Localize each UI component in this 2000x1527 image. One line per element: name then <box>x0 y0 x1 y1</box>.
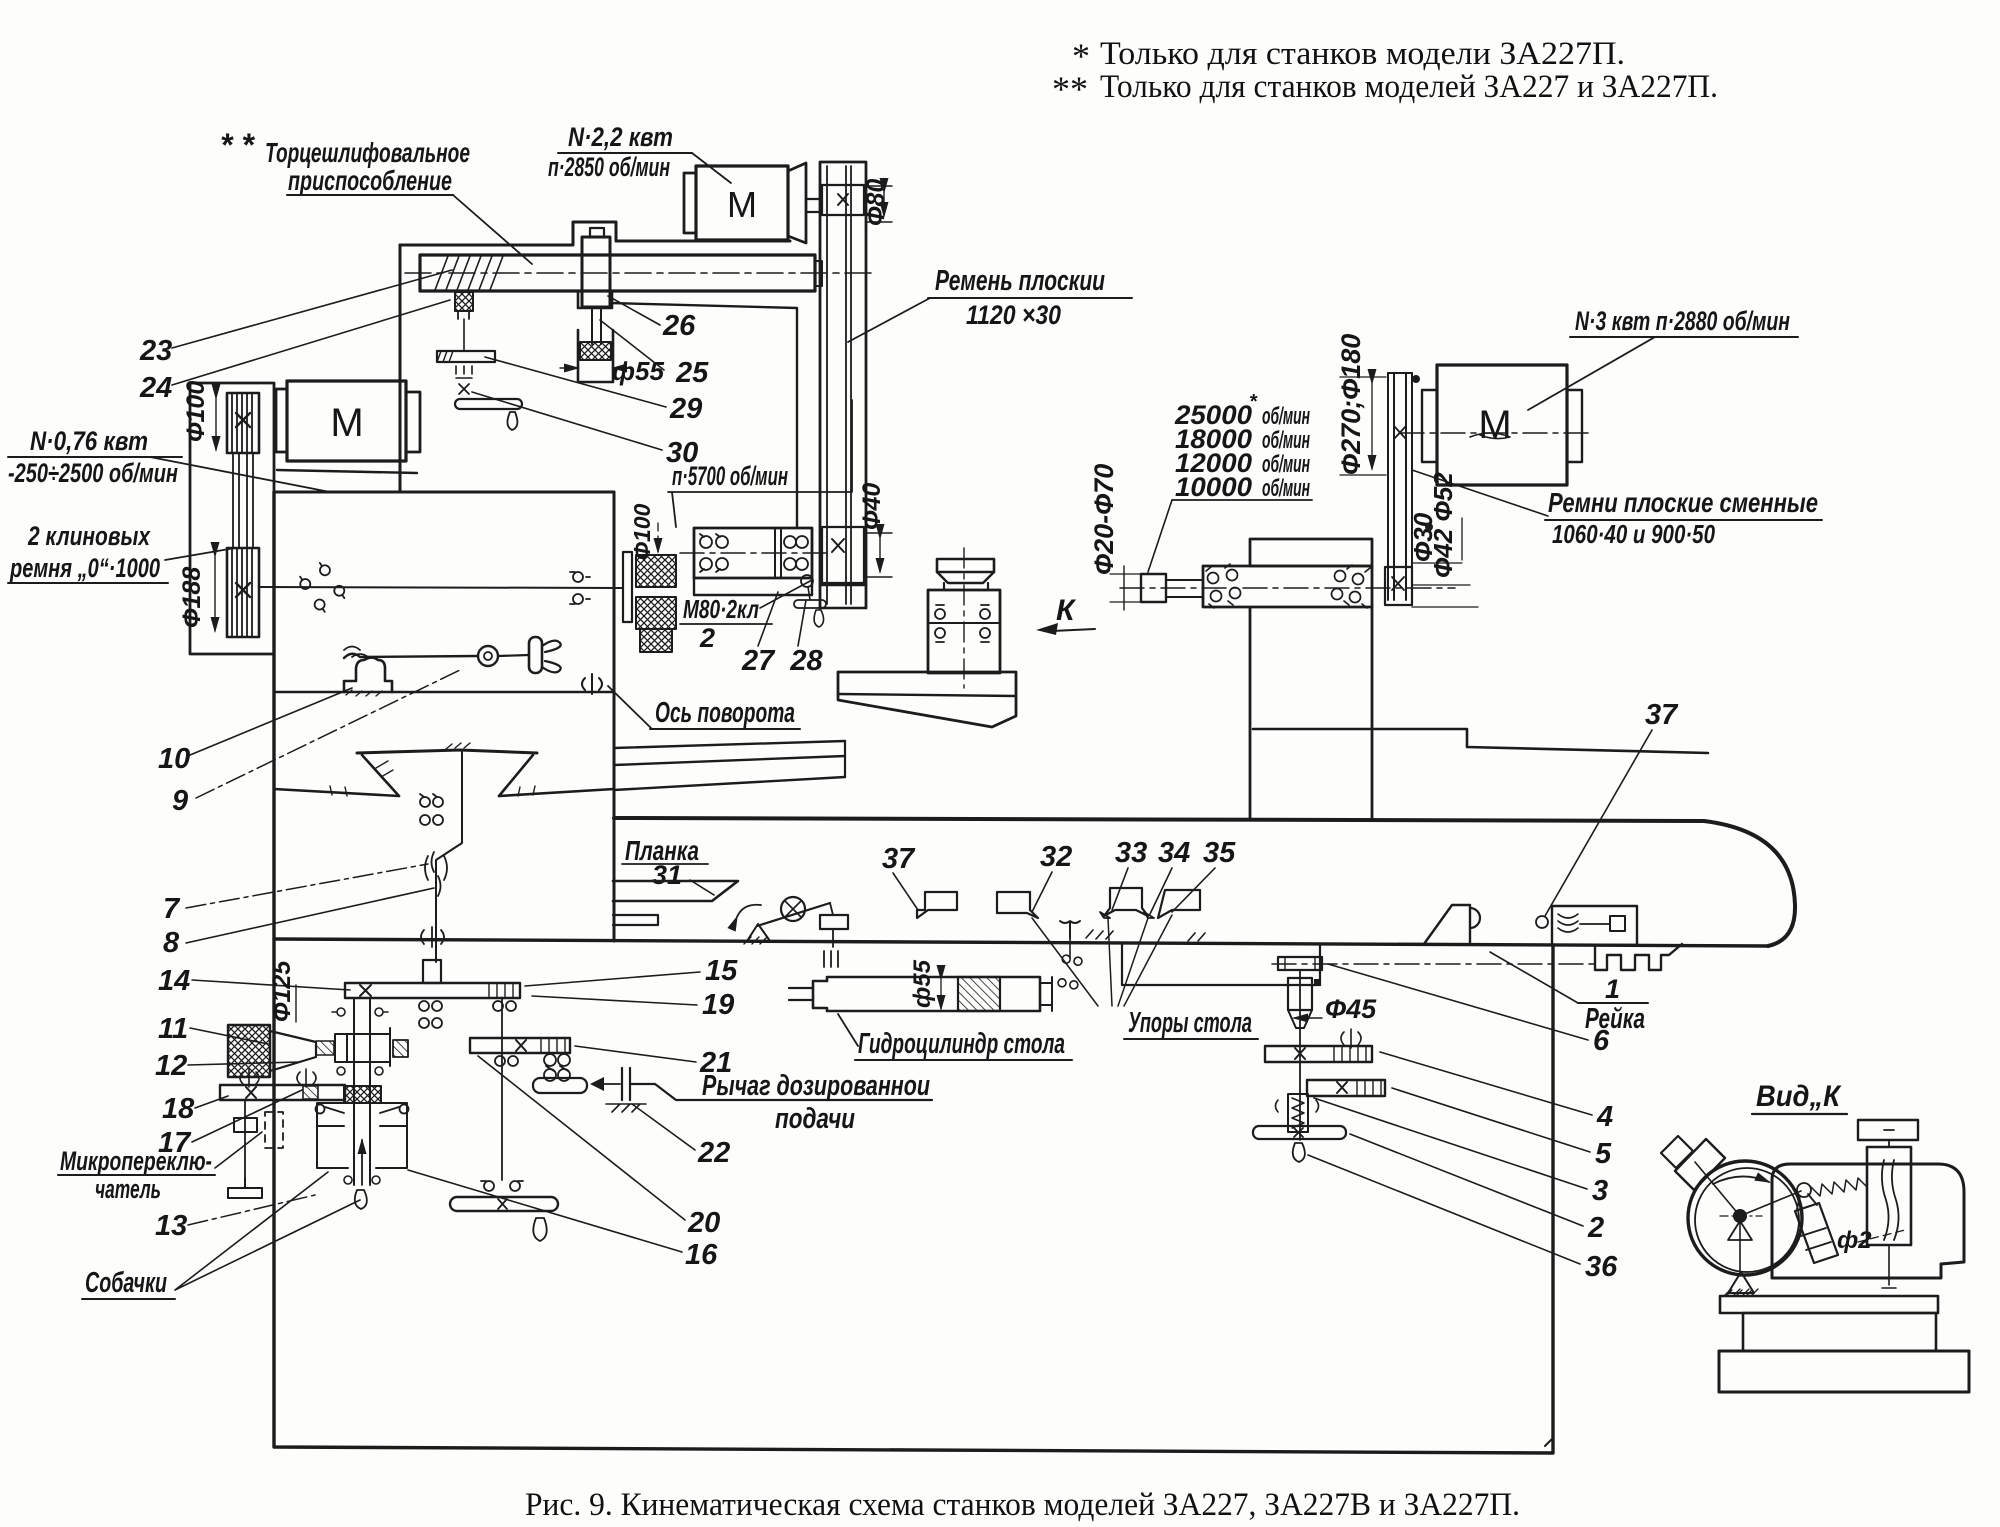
svg-text:п·2850 об/мин: п·2850 об/мин <box>548 152 670 182</box>
svg-text:1: 1 <box>1605 974 1620 1004</box>
svg-text:22: 22 <box>697 1137 730 1169</box>
svg-text:24: 24 <box>139 372 172 404</box>
svg-text:Ось поворота: Ось поворота <box>655 697 795 729</box>
svg-text:19: 19 <box>702 989 734 1021</box>
svg-text:Ф188: Ф188 <box>178 567 206 628</box>
svg-text:* *: * * <box>220 127 255 163</box>
svg-text:16: 16 <box>685 1239 718 1271</box>
svg-text:М: М <box>1478 403 1511 447</box>
svg-text:Собачки: Собачки <box>85 1267 167 1299</box>
svg-text:23: 23 <box>139 335 172 367</box>
svg-text:об/мин: об/мин <box>1262 451 1310 478</box>
svg-text:1120 ×30: 1120 ×30 <box>966 300 1061 330</box>
svg-text:14: 14 <box>158 965 190 997</box>
svg-text:10: 10 <box>158 743 190 775</box>
svg-text:Ф42 Ф52: Ф42 Ф52 <box>1428 472 1458 578</box>
svg-text:ф2: ф2 <box>1837 1227 1872 1254</box>
svg-text:подачи: подачи <box>775 1103 855 1135</box>
svg-text:Ф20-Ф70: Ф20-Ф70 <box>1089 464 1119 575</box>
svg-text:об/мин: об/мин <box>1262 427 1310 454</box>
svg-text:Ф45: Ф45 <box>1325 994 1377 1024</box>
svg-text:Рис. 9. Кинематическая схема: Рис. 9. Кинематическая схема станков мод… <box>525 1487 1520 1523</box>
svg-text:29: 29 <box>669 393 702 425</box>
svg-text:8: 8 <box>163 927 180 959</box>
svg-text:2 клиновых: 2 клиновых <box>27 521 151 551</box>
svg-text:37: 37 <box>1645 699 1679 731</box>
svg-text:11: 11 <box>158 1013 188 1045</box>
svg-text:34: 34 <box>1158 837 1190 869</box>
svg-text:6: 6 <box>1593 1025 1610 1057</box>
svg-text:приспособление: приспособление <box>288 165 452 196</box>
svg-text:Вид„К: Вид„К <box>1756 1080 1842 1113</box>
svg-text:Ф100: Ф100 <box>629 503 655 560</box>
svg-text:Ф40: Ф40 <box>858 483 886 530</box>
svg-text:ремня „0“·1000: ремня „0“·1000 <box>9 553 160 583</box>
svg-text:М80·2кл: М80·2кл <box>683 594 759 624</box>
svg-text:чатель: чатель <box>95 1174 161 1204</box>
svg-text:*: * <box>1249 391 1258 413</box>
svg-text:Рычаг дозированнои: Рычаг дозированнои <box>702 1070 930 1102</box>
svg-text:**: ** <box>1052 69 1088 109</box>
svg-text:Только для станков модели ЗА22: Только для станков модели ЗА227П. <box>1100 36 1625 72</box>
svg-text:2: 2 <box>1587 1212 1604 1244</box>
svg-text:13: 13 <box>155 1210 187 1242</box>
svg-text:п·5700 об/мин: п·5700 об/мин <box>672 461 788 491</box>
svg-text:25: 25 <box>675 357 709 389</box>
svg-text:Только для станков моделей ЗА2: Только для станков моделей ЗА227 и ЗА227… <box>1100 69 1718 105</box>
svg-text:Ф100: Ф100 <box>182 381 210 442</box>
svg-text:К: К <box>1056 594 1077 627</box>
svg-text:Микропереклю-: Микропереклю- <box>60 1146 212 1176</box>
svg-text:Ф125: Ф125 <box>268 960 296 1022</box>
svg-text:5: 5 <box>1595 1138 1612 1170</box>
svg-text:9: 9 <box>172 785 188 817</box>
svg-text:ф55: ф55 <box>909 959 936 1008</box>
svg-text:об/мин: об/мин <box>1262 475 1310 502</box>
svg-text:Ф270;Ф180: Ф270;Ф180 <box>1336 334 1366 475</box>
svg-text:3: 3 <box>1592 1175 1608 1207</box>
svg-text:2: 2 <box>699 623 715 653</box>
svg-text:36: 36 <box>1585 1251 1618 1283</box>
svg-text:27 28: 27 28 <box>741 645 823 677</box>
svg-text:4: 4 <box>1596 1101 1613 1133</box>
svg-text:об/мин: об/мин <box>1262 403 1310 430</box>
svg-text:7: 7 <box>163 893 181 925</box>
svg-text:1060·40 и 900·50: 1060·40 и 900·50 <box>1552 519 1715 549</box>
svg-text:-250÷2500 об/мин: -250÷2500 об/мин <box>8 458 178 488</box>
svg-text:26: 26 <box>662 310 696 342</box>
svg-text:35: 35 <box>1203 837 1236 869</box>
svg-text:N·0,76 квт: N·0,76 квт <box>30 426 148 456</box>
svg-text:N·3 квт п·2880 об/мин: N·3 квт п·2880 об/мин <box>1575 306 1790 336</box>
svg-text:12: 12 <box>155 1050 187 1082</box>
svg-text:32: 32 <box>1040 841 1072 873</box>
svg-text:Упоры стола: Упоры стола <box>1128 1007 1252 1039</box>
svg-text:15: 15 <box>705 955 738 987</box>
svg-text:N·2,2 квт: N·2,2 квт <box>568 122 673 152</box>
svg-text:Ремень плоскии: Ремень плоскии <box>935 265 1105 297</box>
svg-text:37: 37 <box>882 843 916 875</box>
svg-text:Ремни плоские сменные: Ремни плоские сменные <box>1548 487 1818 518</box>
svg-text:М: М <box>330 401 363 445</box>
svg-text:10000: 10000 <box>1175 472 1252 502</box>
svg-text:М: М <box>727 184 757 225</box>
svg-text:33: 33 <box>1115 837 1147 869</box>
svg-text:18: 18 <box>162 1093 195 1125</box>
svg-text:Гидроцилиндр стола: Гидроцилиндр стола <box>858 1028 1065 1060</box>
svg-text:20: 20 <box>687 1207 720 1239</box>
svg-text:Торцешлифовальное: Торцешлифовальное <box>265 137 470 168</box>
svg-text:ф55: ф55 <box>612 356 664 386</box>
